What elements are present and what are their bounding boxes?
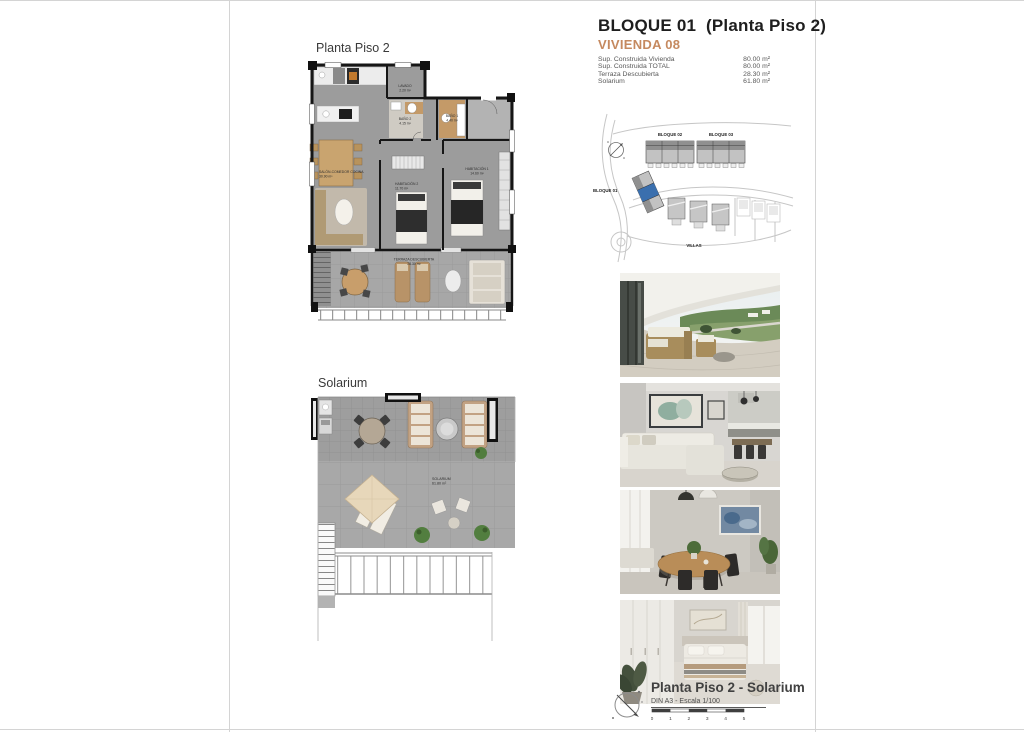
- room-label-lavado: LAVADO: [398, 84, 412, 88]
- footer-scale-note: DIN A3 - Escala 1/100: [651, 698, 766, 708]
- spec-label: Terraza Descubierta: [598, 71, 659, 78]
- compass-icon: [606, 688, 648, 728]
- room-area-hab1: 14.60 m²: [470, 172, 484, 176]
- footer-plan-title: Planta Piso 2 - Solarium: [651, 680, 805, 695]
- room-area-solarium: 61.80 m²: [432, 482, 447, 486]
- room-label-terraza: TERRAZA DESCUBIERTA: [394, 258, 435, 262]
- page-edge-top: [0, 0, 1024, 1]
- room-label-hab2: HABITACIÓN 2: [395, 181, 418, 186]
- building-bloque03: [697, 141, 745, 168]
- page-edge-right: [815, 0, 816, 732]
- spec-label: Sup. Construida Vivienda: [598, 56, 675, 63]
- room-label-hab1: HABITACIÓN 1: [465, 166, 488, 171]
- photo-living-room: [620, 383, 780, 487]
- room-area-terraza: 28.30 m²: [407, 262, 421, 266]
- room-area-lavado: 2.20 m²: [399, 89, 411, 93]
- scale-tick: 2: [687, 716, 690, 722]
- room-label-bano1: BAÑO 1: [446, 113, 459, 118]
- scale-tick: 3: [706, 716, 709, 722]
- spec-value: 80.00 m²: [743, 63, 770, 70]
- spec-row: Sup. Construida Vivienda 80.00 m²: [598, 56, 770, 63]
- room-area-hab2: 11.70 m²: [395, 187, 409, 191]
- scale-tick: 1: [669, 716, 672, 722]
- photo-terrace-balcony: [620, 273, 780, 377]
- spec-row: Solarium 61.80 m²: [598, 78, 770, 85]
- map-label-villas: VILLAS: [686, 243, 701, 248]
- scale-tick: 5: [743, 716, 746, 722]
- spec-label: Solarium: [598, 78, 625, 85]
- unit-subtitle: VIVIENDA 08: [598, 37, 680, 52]
- spec-value: 28.30 m²: [743, 71, 770, 78]
- room-label-salon: SALÓN-COMEDOR COCINA: [319, 169, 364, 174]
- villa-plots-outline: [737, 198, 780, 222]
- spec-value: 80.00 m²: [743, 56, 770, 63]
- building-bloque02: [646, 141, 694, 168]
- scale-tick: 0: [651, 716, 654, 722]
- map-label-bloque01: BLOQUE 01: [593, 188, 618, 193]
- floor-plan-solarium: SOLARIUM 61.80 m²: [305, 391, 525, 653]
- brochure-page: BLOQUE 01 (Planta Piso 2) VIVIENDA 08 Su…: [0, 0, 1024, 732]
- scale-tick: 4: [724, 716, 727, 722]
- spec-value: 61.80 m²: [743, 78, 770, 85]
- scale-bar: 0 1 2 3 4 5: [651, 708, 747, 725]
- map-label-bloque03: BLOQUE 03: [709, 132, 734, 137]
- plan2-title: Solarium: [318, 376, 367, 390]
- room-label-bano2: BAÑO 2: [399, 116, 412, 121]
- spec-row: Sup. Construida TOTAL 80.00 m²: [598, 63, 770, 70]
- photo-dining-area: [620, 490, 780, 594]
- site-plan-map: BLOQUE 02 BLOQUE 03 BLOQUE 01 VILLAS: [585, 110, 795, 268]
- map-label-bloque02: BLOQUE 02: [658, 132, 683, 137]
- spec-row: Terraza Descubierta 28.30 m²: [598, 71, 770, 78]
- page-title: BLOQUE 01 (Planta Piso 2): [598, 16, 826, 36]
- spec-label: Sup. Construida TOTAL: [598, 63, 670, 70]
- surface-spec-table: Sup. Construida Vivienda 80.00 m² Sup. C…: [598, 56, 770, 85]
- page-edge-bottom: [0, 729, 1024, 730]
- plan1-title: Planta Piso 2: [316, 41, 390, 55]
- villas-houses: [668, 198, 729, 231]
- page-edge-left: [229, 0, 230, 732]
- room-area-bano2: 4.15 m²: [399, 122, 411, 126]
- room-area-salon: 30.90 m²: [319, 175, 333, 179]
- room-label-solarium: SOLARIUM: [432, 477, 451, 481]
- room-area-bano1: 4.40 m²: [446, 119, 458, 123]
- floor-plan-piso2: LAVADO 2.20 m² BAÑO 2 4.15 m² BAÑO 1 4.4…: [295, 60, 525, 328]
